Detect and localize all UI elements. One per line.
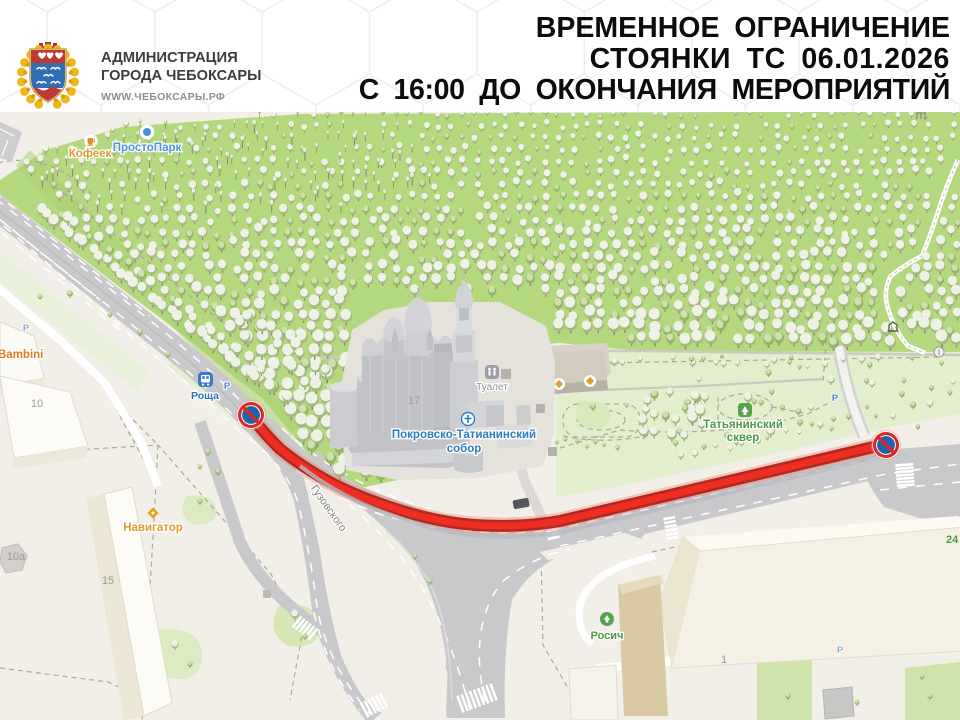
svg-text:Покровско-Татианинский: Покровско-Татианинский (392, 429, 536, 441)
svg-text:Роща: Роща (191, 390, 219, 402)
svg-text:1: 1 (721, 654, 727, 666)
svg-text:i: i (938, 348, 940, 357)
svg-text:Татьянинский: Татьянинский (703, 419, 783, 431)
svg-text:P: P (832, 393, 839, 404)
svg-text:сквер: сквер (727, 432, 760, 444)
svg-text:10а: 10а (7, 551, 26, 563)
svg-text:15: 15 (102, 575, 114, 587)
svg-text:Bambini: Bambini (0, 349, 43, 361)
svg-text:P: P (23, 323, 30, 334)
svg-text:ГОРОДА ЧЕБОКСАРЫ: ГОРОДА ЧЕБОКСАРЫ (101, 68, 261, 84)
svg-text:24: 24 (946, 534, 959, 546)
svg-text:ВРЕМЕННОЕ ОГРАНИЧЕНИЕ: ВРЕМЕННОЕ ОГРАНИЧЕНИЕ (536, 12, 950, 44)
svg-text:P: P (837, 645, 844, 656)
svg-text:WWW.ЧЕБОКСАРЫ.РФ: WWW.ЧЕБОКСАРЫ.РФ (101, 91, 225, 103)
svg-text:Туалет: Туалет (476, 382, 508, 393)
svg-text:Навигатор: Навигатор (123, 522, 183, 534)
svg-text:АДМИНИСТРАЦИЯ: АДМИНИСТРАЦИЯ (101, 50, 238, 66)
svg-text:17: 17 (408, 395, 420, 407)
svg-text:Кофеек: Кофеек (69, 148, 112, 160)
svg-text:СТОЯНКИ ТС 06.01.2026: СТОЯНКИ ТС 06.01.2026 (590, 43, 950, 75)
svg-text:собор: собор (447, 443, 482, 455)
svg-text:ПростоПарк: ПростоПарк (113, 142, 182, 154)
svg-text:P: P (224, 381, 231, 392)
svg-text:Росич: Росич (591, 630, 624, 642)
svg-text:10: 10 (31, 398, 43, 410)
svg-text:С 16:00 ДО ОКОНЧАНИЯ МЕРОПРИЯТ: С 16:00 ДО ОКОНЧАНИЯ МЕРОПРИЯТИЙ (359, 73, 950, 106)
